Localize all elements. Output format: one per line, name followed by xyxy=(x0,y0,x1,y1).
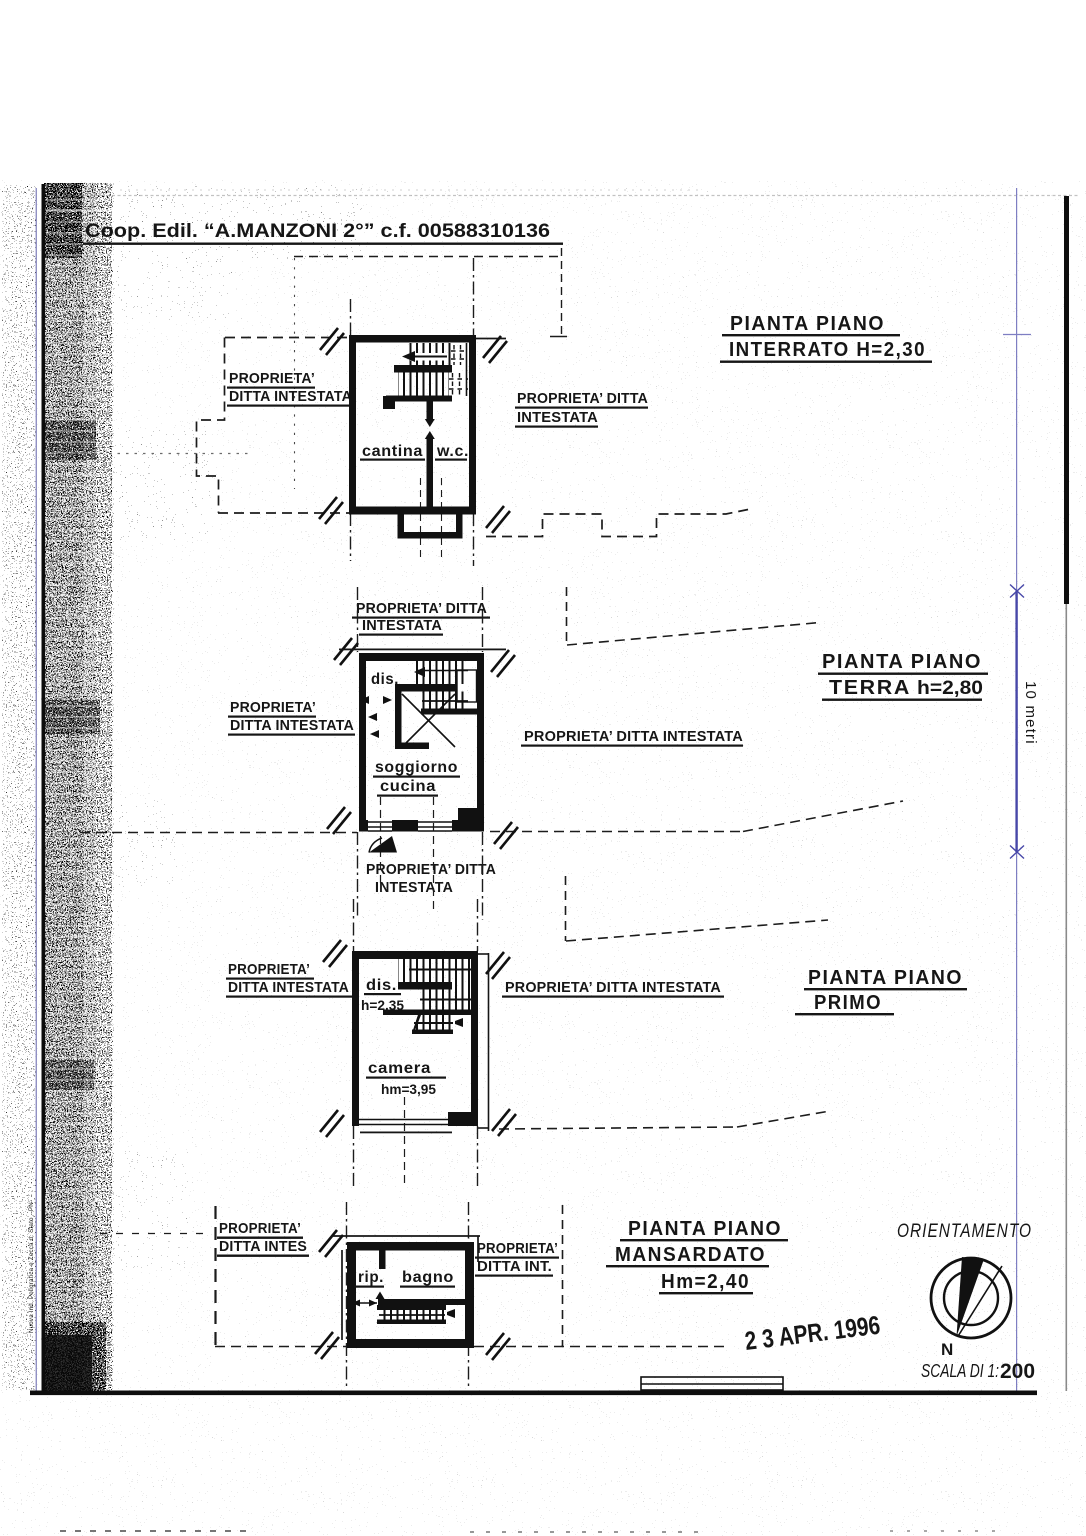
svg-text:PROPRIETA’: PROPRIETA’ xyxy=(477,1240,558,1257)
svg-text:cucina: cucina xyxy=(380,778,436,795)
svg-text:200: 200 xyxy=(1000,1360,1035,1383)
svg-text:Nuova Ind. Poligrafica e Zecca: Nuova Ind. Poligrafica e Zecca d. Stato … xyxy=(29,1202,35,1333)
svg-text:PRIMO: PRIMO xyxy=(814,991,882,1014)
svg-text:dis.: dis. xyxy=(371,671,399,688)
svg-text:ORIENTAMENTO: ORIENTAMENTO xyxy=(897,1221,1032,1242)
svg-text:PROPRIETA’ DITTA INTESTATA: PROPRIETA’ DITTA INTESTATA xyxy=(505,979,721,996)
svg-text:INTESTATA: INTESTATA xyxy=(517,409,598,426)
svg-text:DITTA INTESTATA: DITTA INTESTATA xyxy=(229,388,352,405)
svg-text:h=2,35: h=2,35 xyxy=(361,998,404,1013)
svg-text:Hm=2,40: Hm=2,40 xyxy=(661,1270,750,1293)
svg-text:soggiorno: soggiorno xyxy=(375,759,458,776)
svg-text:PIANTA PIANO: PIANTA PIANO xyxy=(822,650,982,673)
svg-text:PROPRIETA’: PROPRIETA’ xyxy=(229,370,315,387)
svg-text:dis.: dis. xyxy=(366,977,397,994)
svg-text:PROPRIETA’ DITTA INTESTATA: PROPRIETA’ DITTA INTESTATA xyxy=(524,728,743,745)
svg-text:Coop. Edil. “A.MANZONI 2°” c.f: Coop. Edil. “A.MANZONI 2°” c.f. 00588310… xyxy=(85,221,550,242)
svg-text:PIANTA PIANO: PIANTA PIANO xyxy=(730,312,885,335)
svg-text:bagno: bagno xyxy=(402,1269,454,1286)
svg-text:INTESTATA: INTESTATA xyxy=(375,879,453,896)
svg-text:N: N xyxy=(941,1340,953,1359)
svg-text:PIANTA PIANO: PIANTA PIANO xyxy=(628,1217,782,1240)
svg-text:PIANTA PIANO: PIANTA PIANO xyxy=(808,966,963,989)
svg-text:MANSARDATO: MANSARDATO xyxy=(615,1243,766,1266)
svg-text:DITTA INTESTATA: DITTA INTESTATA xyxy=(230,717,354,734)
svg-text:DITTA INTES: DITTA INTES xyxy=(219,1238,307,1255)
svg-text:w.c.: w.c. xyxy=(436,443,469,460)
svg-text:INTERRATO H=2,30: INTERRATO H=2,30 xyxy=(729,338,926,361)
svg-text:PROPRIETA’ DITTA: PROPRIETA’ DITTA xyxy=(517,390,648,407)
svg-text:DITTA INTESTATA: DITTA INTESTATA xyxy=(228,979,349,996)
svg-text:PROPRIETA’: PROPRIETA’ xyxy=(219,1220,301,1237)
svg-text:rip.: rip. xyxy=(358,1269,384,1286)
svg-text:PROPRIETA’: PROPRIETA’ xyxy=(228,961,310,978)
svg-text:TERRA: TERRA xyxy=(829,676,911,699)
svg-text:DITTA INT.: DITTA INT. xyxy=(477,1258,552,1275)
svg-text:PROPRIETA’ DITTA: PROPRIETA’ DITTA xyxy=(366,861,496,878)
svg-text:h=2,80: h=2,80 xyxy=(917,678,983,699)
svg-text:SCALA DI 1:: SCALA DI 1: xyxy=(921,1361,999,1381)
svg-text:cantina: cantina xyxy=(362,443,423,460)
svg-text:10 metri: 10 metri xyxy=(1022,681,1039,745)
svg-text:hm=3,95: hm=3,95 xyxy=(381,1081,436,1097)
svg-text:PROPRIETA’ DITTA: PROPRIETA’ DITTA xyxy=(356,600,487,617)
svg-text:INTESTATA: INTESTATA xyxy=(362,617,442,634)
svg-text:PROPRIETA’: PROPRIETA’ xyxy=(230,699,316,716)
svg-text:camera: camera xyxy=(368,1060,431,1077)
